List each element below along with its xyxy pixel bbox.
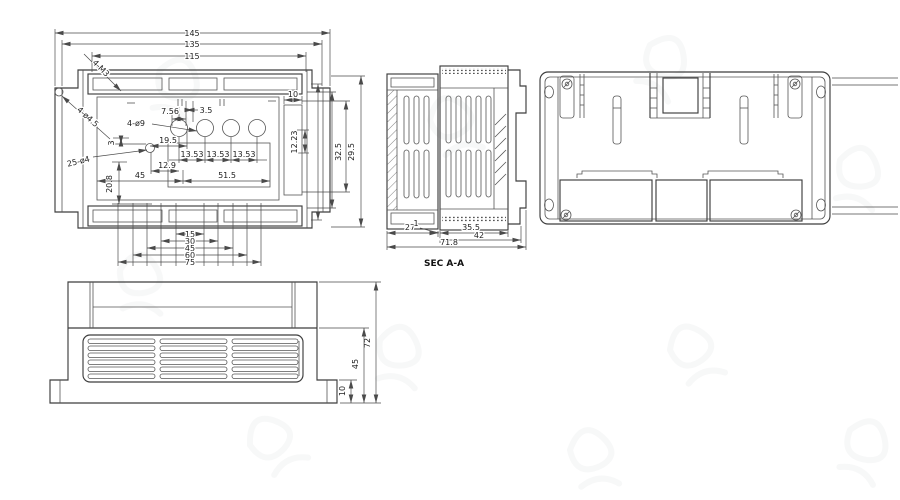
dim-1: 1 [413,219,418,228]
dim-v2: 29.5 [347,143,356,161]
oval-hole [817,86,826,98]
dim-19-5: 19.5 [159,136,177,145]
dim-v1: 32.5 [334,143,343,161]
dim-overall-width: 145 [184,29,199,38]
dim-51-5: 51.5 [218,171,236,180]
section-hatch-wall [387,90,397,210]
dim-pitch-2: 13.53 [207,150,230,159]
dim-45: 45 [135,171,145,180]
bottom-view [540,72,898,224]
top-view-dimensions: 145 135 115 4-M3 4-ø4.5 4-ø9 25-ø4 7. [55,29,365,267]
screw-bosses [560,76,802,220]
dim-115: 115 [184,52,199,61]
dim-135: 135 [184,40,199,49]
oval-hole [817,199,826,211]
bottom-vent-window-strip [88,206,302,226]
leader-4-m3: 4-M3 [91,58,111,78]
section-view: 27 1 35.5 42 71.8 SEC A-A [387,66,526,269]
dim-12-9: 12.9 [158,161,176,170]
hole-d4 [146,144,155,153]
front-view-dimensions: 72 45 10 [319,282,381,403]
front-vent-panel [83,335,303,382]
dim-10: 10 [338,386,347,396]
oval-hole [545,86,554,98]
dim-3: 3 [107,140,116,145]
dim-3-5: 3.5 [200,106,213,115]
dim-45: 45 [351,359,360,369]
dim-pitch-3: 13.53 [233,150,256,159]
hole-d9 [223,120,240,137]
leader-25-d4: 25-ø4 [66,154,91,168]
dim-pitch-1: 13.53 [181,150,204,159]
leader-4-d4-5: 4-ø4.5 [75,105,100,129]
dim-12-23: 12.23 [290,131,299,154]
dim-10: 10 [288,90,298,99]
terminal-openings [560,171,802,221]
watermark-pattern [117,30,898,490]
hole-d9 [249,120,266,137]
dim-stack-75: 75 [185,258,195,267]
oval-hole [545,199,554,211]
din-rail-flange [508,70,526,224]
center-ribs [613,96,748,144]
technical-drawing: 145 135 115 4-M3 4-ø4.5 4-ø9 25-ø4 7. [0,0,900,500]
dim-71-8: 71.8 [440,238,458,247]
front-view: 72 45 10 [50,282,381,403]
dim-7-56: 7.56 [161,107,179,116]
section-left-block [387,74,438,229]
top-view: 145 135 115 4-M3 4-ø4.5 4-ø9 25-ø4 7. [55,29,365,267]
leader-4-d9: 4-ø9 [127,119,145,128]
center-cutout [650,73,710,118]
dim-20-8: 20.8 [105,175,114,193]
section-label: SEC A-A [424,259,464,269]
hole-d9 [197,120,214,137]
dim-42: 42 [474,231,484,240]
